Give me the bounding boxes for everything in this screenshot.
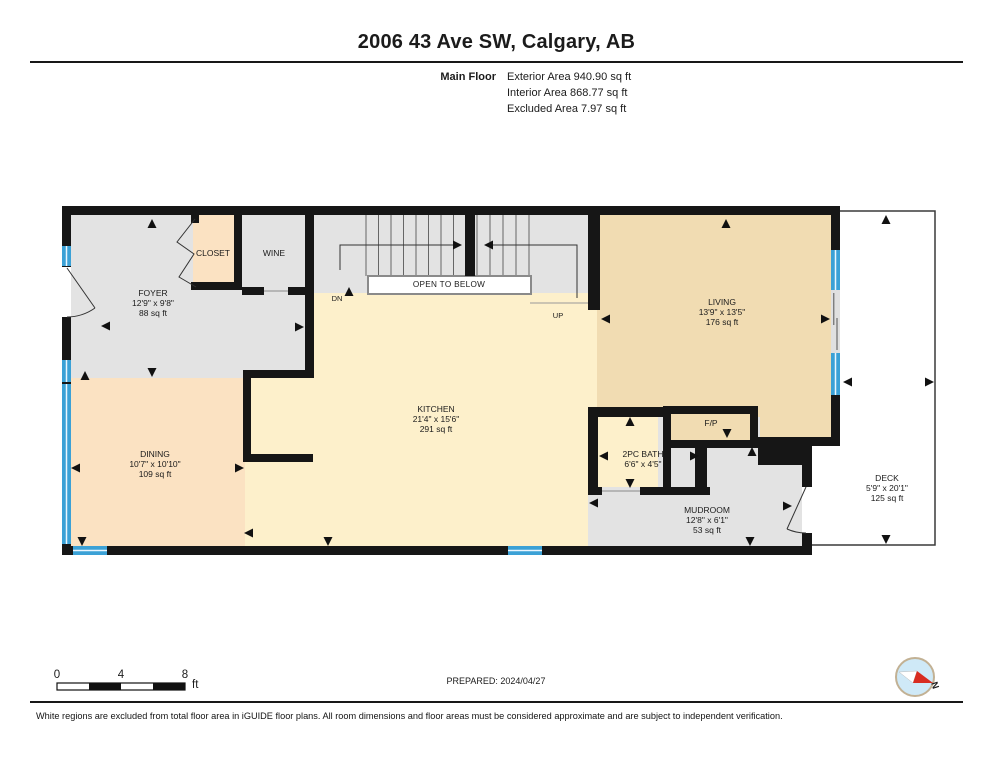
dimension-arrow xyxy=(925,378,934,387)
footer-divider xyxy=(30,701,963,703)
dimension-arrow xyxy=(882,535,891,544)
stairs-up-label: UP xyxy=(553,311,563,321)
room-label-kitchen: KITCHEN 21'4" x 15'6" 291 sq ft xyxy=(413,404,460,434)
scale-tick-4: 4 xyxy=(118,669,124,681)
disclaimer-text: White regions are excluded from total fl… xyxy=(36,711,783,721)
room-name: DINING xyxy=(129,449,180,459)
room-label-foyer: FOYER 12'9" x 9'8" 88 sq ft xyxy=(132,288,174,318)
scale-tick-8: 8 xyxy=(182,669,188,681)
room-label-closet: CLOSET xyxy=(196,248,230,258)
floor-plan-drawing xyxy=(0,0,993,768)
room-label-living: LIVING 13'9" x 13'5" 176 sq ft xyxy=(699,297,746,327)
room-label-mudroom: MUDROOM 12'8" x 6'1" 53 sq ft xyxy=(684,505,730,535)
room-area: 53 sq ft xyxy=(684,525,730,535)
room-dims: 10'7" x 10'10" xyxy=(129,459,180,469)
prepared-date: PREPARED: 2024/04/27 xyxy=(447,676,546,686)
page-title: 2006 43 Ave SW, Calgary, AB xyxy=(0,31,993,54)
room-dims: 21'4" x 15'6" xyxy=(413,414,460,424)
room-area: 109 sq ft xyxy=(129,469,180,479)
excluded-area: Excluded Area 7.97 sq ft xyxy=(507,101,631,117)
room-dims: 13'9" x 13'5" xyxy=(699,307,746,317)
room-label-deck: DECK 5'9" x 20'1" 125 sq ft xyxy=(866,473,908,503)
header-divider xyxy=(30,61,963,63)
room-name: DECK xyxy=(866,473,908,483)
room-name: 2PC BATH xyxy=(623,449,664,459)
floor-fills xyxy=(71,215,831,546)
north-compass-icon xyxy=(896,658,934,696)
dimension-arrow xyxy=(843,378,852,387)
room-name: WINE xyxy=(263,248,285,258)
room-name: LIVING xyxy=(699,297,746,307)
exterior-area: Exterior Area 940.90 sq ft xyxy=(507,69,631,85)
interior-area: Interior Area 868.77 sq ft xyxy=(507,85,631,101)
room-name: CLOSET xyxy=(196,248,230,258)
room-area: 125 sq ft xyxy=(866,493,908,503)
room-dims: 12'8" x 6'1" xyxy=(684,515,730,525)
room-dims: 5'9" x 20'1" xyxy=(866,483,908,493)
room-label-bath: 2PC BATH 6'6" x 4'5" xyxy=(623,449,664,469)
patio-door xyxy=(831,290,840,353)
room-name: FOYER xyxy=(132,288,174,298)
stairs-dn-label: DN xyxy=(332,294,343,304)
room-label-fireplace: F/P xyxy=(704,418,717,428)
floor-areas: Exterior Area 940.90 sq ft Interior Area… xyxy=(507,69,631,117)
room-dims: 12'9" x 9'8" xyxy=(132,298,174,308)
open-to-below-label: OPEN TO BELOW xyxy=(413,280,485,290)
floor-label: Main Floor xyxy=(0,69,496,85)
scale-unit: ft xyxy=(192,679,198,691)
scale-bar xyxy=(57,683,185,690)
room-label-dining: DINING 10'7" x 10'10" 109 sq ft xyxy=(129,449,180,479)
room-name: F/P xyxy=(704,418,717,428)
room-label-wine: WINE xyxy=(263,248,285,258)
room-name: KITCHEN xyxy=(413,404,460,414)
room-area: 176 sq ft xyxy=(699,317,746,327)
dimension-arrow xyxy=(882,215,891,224)
scale-tick-0: 0 xyxy=(54,669,60,681)
room-dims: 6'6" x 4'5" xyxy=(623,459,664,469)
floor-plan-sheet: 2006 43 Ave SW, Calgary, AB Main Floor E… xyxy=(0,0,993,768)
room-name: MUDROOM xyxy=(684,505,730,515)
room-area: 291 sq ft xyxy=(413,424,460,434)
room-area: 88 sq ft xyxy=(132,308,174,318)
